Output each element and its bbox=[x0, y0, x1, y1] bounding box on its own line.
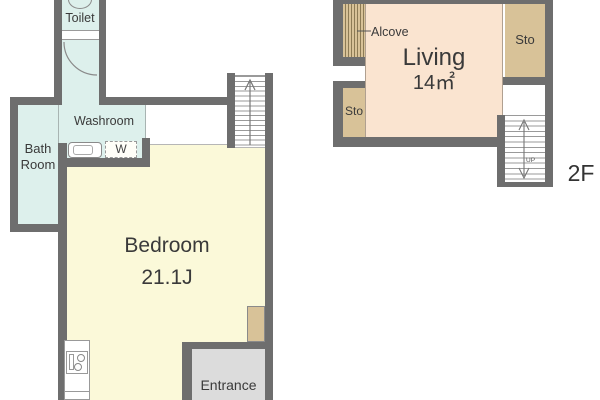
storage-upper-label: Sto bbox=[505, 33, 545, 48]
toilet-door-threshold bbox=[62, 30, 99, 40]
alcove-floor bbox=[343, 3, 365, 57]
stairs-1f bbox=[235, 75, 265, 148]
left-wall-2f-upper bbox=[333, 0, 343, 66]
stairs-bottom-wall-2f bbox=[497, 182, 545, 187]
floor-plan-1f: Toilet Washroom Bath Room W Bedroom 21.1… bbox=[0, 0, 300, 400]
entrance-left-wall bbox=[182, 342, 192, 400]
storage-lower-top-wall bbox=[343, 81, 365, 88]
bedroom-label: Bedroom 21.1J bbox=[87, 230, 247, 294]
bottom-wall-2f bbox=[333, 137, 505, 147]
bathroom-label: Bath Room bbox=[16, 141, 60, 173]
floor-2f-label: 2F bbox=[563, 160, 599, 186]
washroom-bottom-wall bbox=[58, 158, 150, 167]
bathroom-label-line2: Room bbox=[16, 157, 60, 173]
floor-plan-2f: Alcove Living 14㎡ Sto Sto UP 2F bbox=[300, 0, 600, 400]
washer-label: W bbox=[105, 143, 137, 157]
stairs-left-wall-2f bbox=[497, 115, 505, 187]
floor-plan-document: Toilet Washroom Bath Room W Bedroom 21.1… bbox=[0, 0, 600, 400]
alcove-label: Alcove bbox=[371, 25, 417, 39]
washroom-right-wall-stub bbox=[142, 138, 150, 160]
kitchen-divider-line bbox=[64, 391, 90, 392]
bedroom-name: Bedroom bbox=[87, 230, 247, 262]
stairs-up-label: UP bbox=[526, 157, 540, 164]
stairs-2f bbox=[505, 115, 545, 182]
bathroom-label-line1: Bath bbox=[16, 141, 60, 157]
bedroom-right-wall bbox=[265, 73, 273, 400]
stove-burner-1 bbox=[77, 354, 85, 362]
living-size-label: 14㎡ bbox=[365, 72, 503, 95]
alcove-bottom-wall bbox=[343, 57, 365, 66]
stove-burner-2 bbox=[74, 363, 82, 371]
top-wall-right bbox=[106, 97, 233, 105]
stair-hall-floor bbox=[145, 105, 227, 145]
entrance-top-wall bbox=[182, 342, 267, 349]
top-wall-2f bbox=[333, 0, 553, 4]
living-label: Living bbox=[365, 44, 503, 72]
storage-upper-bottom-wall bbox=[503, 77, 545, 85]
bathroom-bottom-wall bbox=[10, 224, 58, 232]
storage-lower-label: Sto bbox=[340, 105, 368, 119]
bedroom-size: 21.1J bbox=[87, 262, 247, 294]
toilet-label: Toilet bbox=[54, 11, 106, 25]
stairs-left-wall-1f bbox=[227, 73, 235, 148]
bathtub-basin bbox=[73, 145, 93, 155]
right-wall-2f bbox=[545, 0, 553, 187]
washroom-label: Washroom bbox=[60, 114, 148, 128]
shoe-cabinet bbox=[247, 306, 265, 342]
entrance-label: Entrance bbox=[192, 377, 265, 393]
